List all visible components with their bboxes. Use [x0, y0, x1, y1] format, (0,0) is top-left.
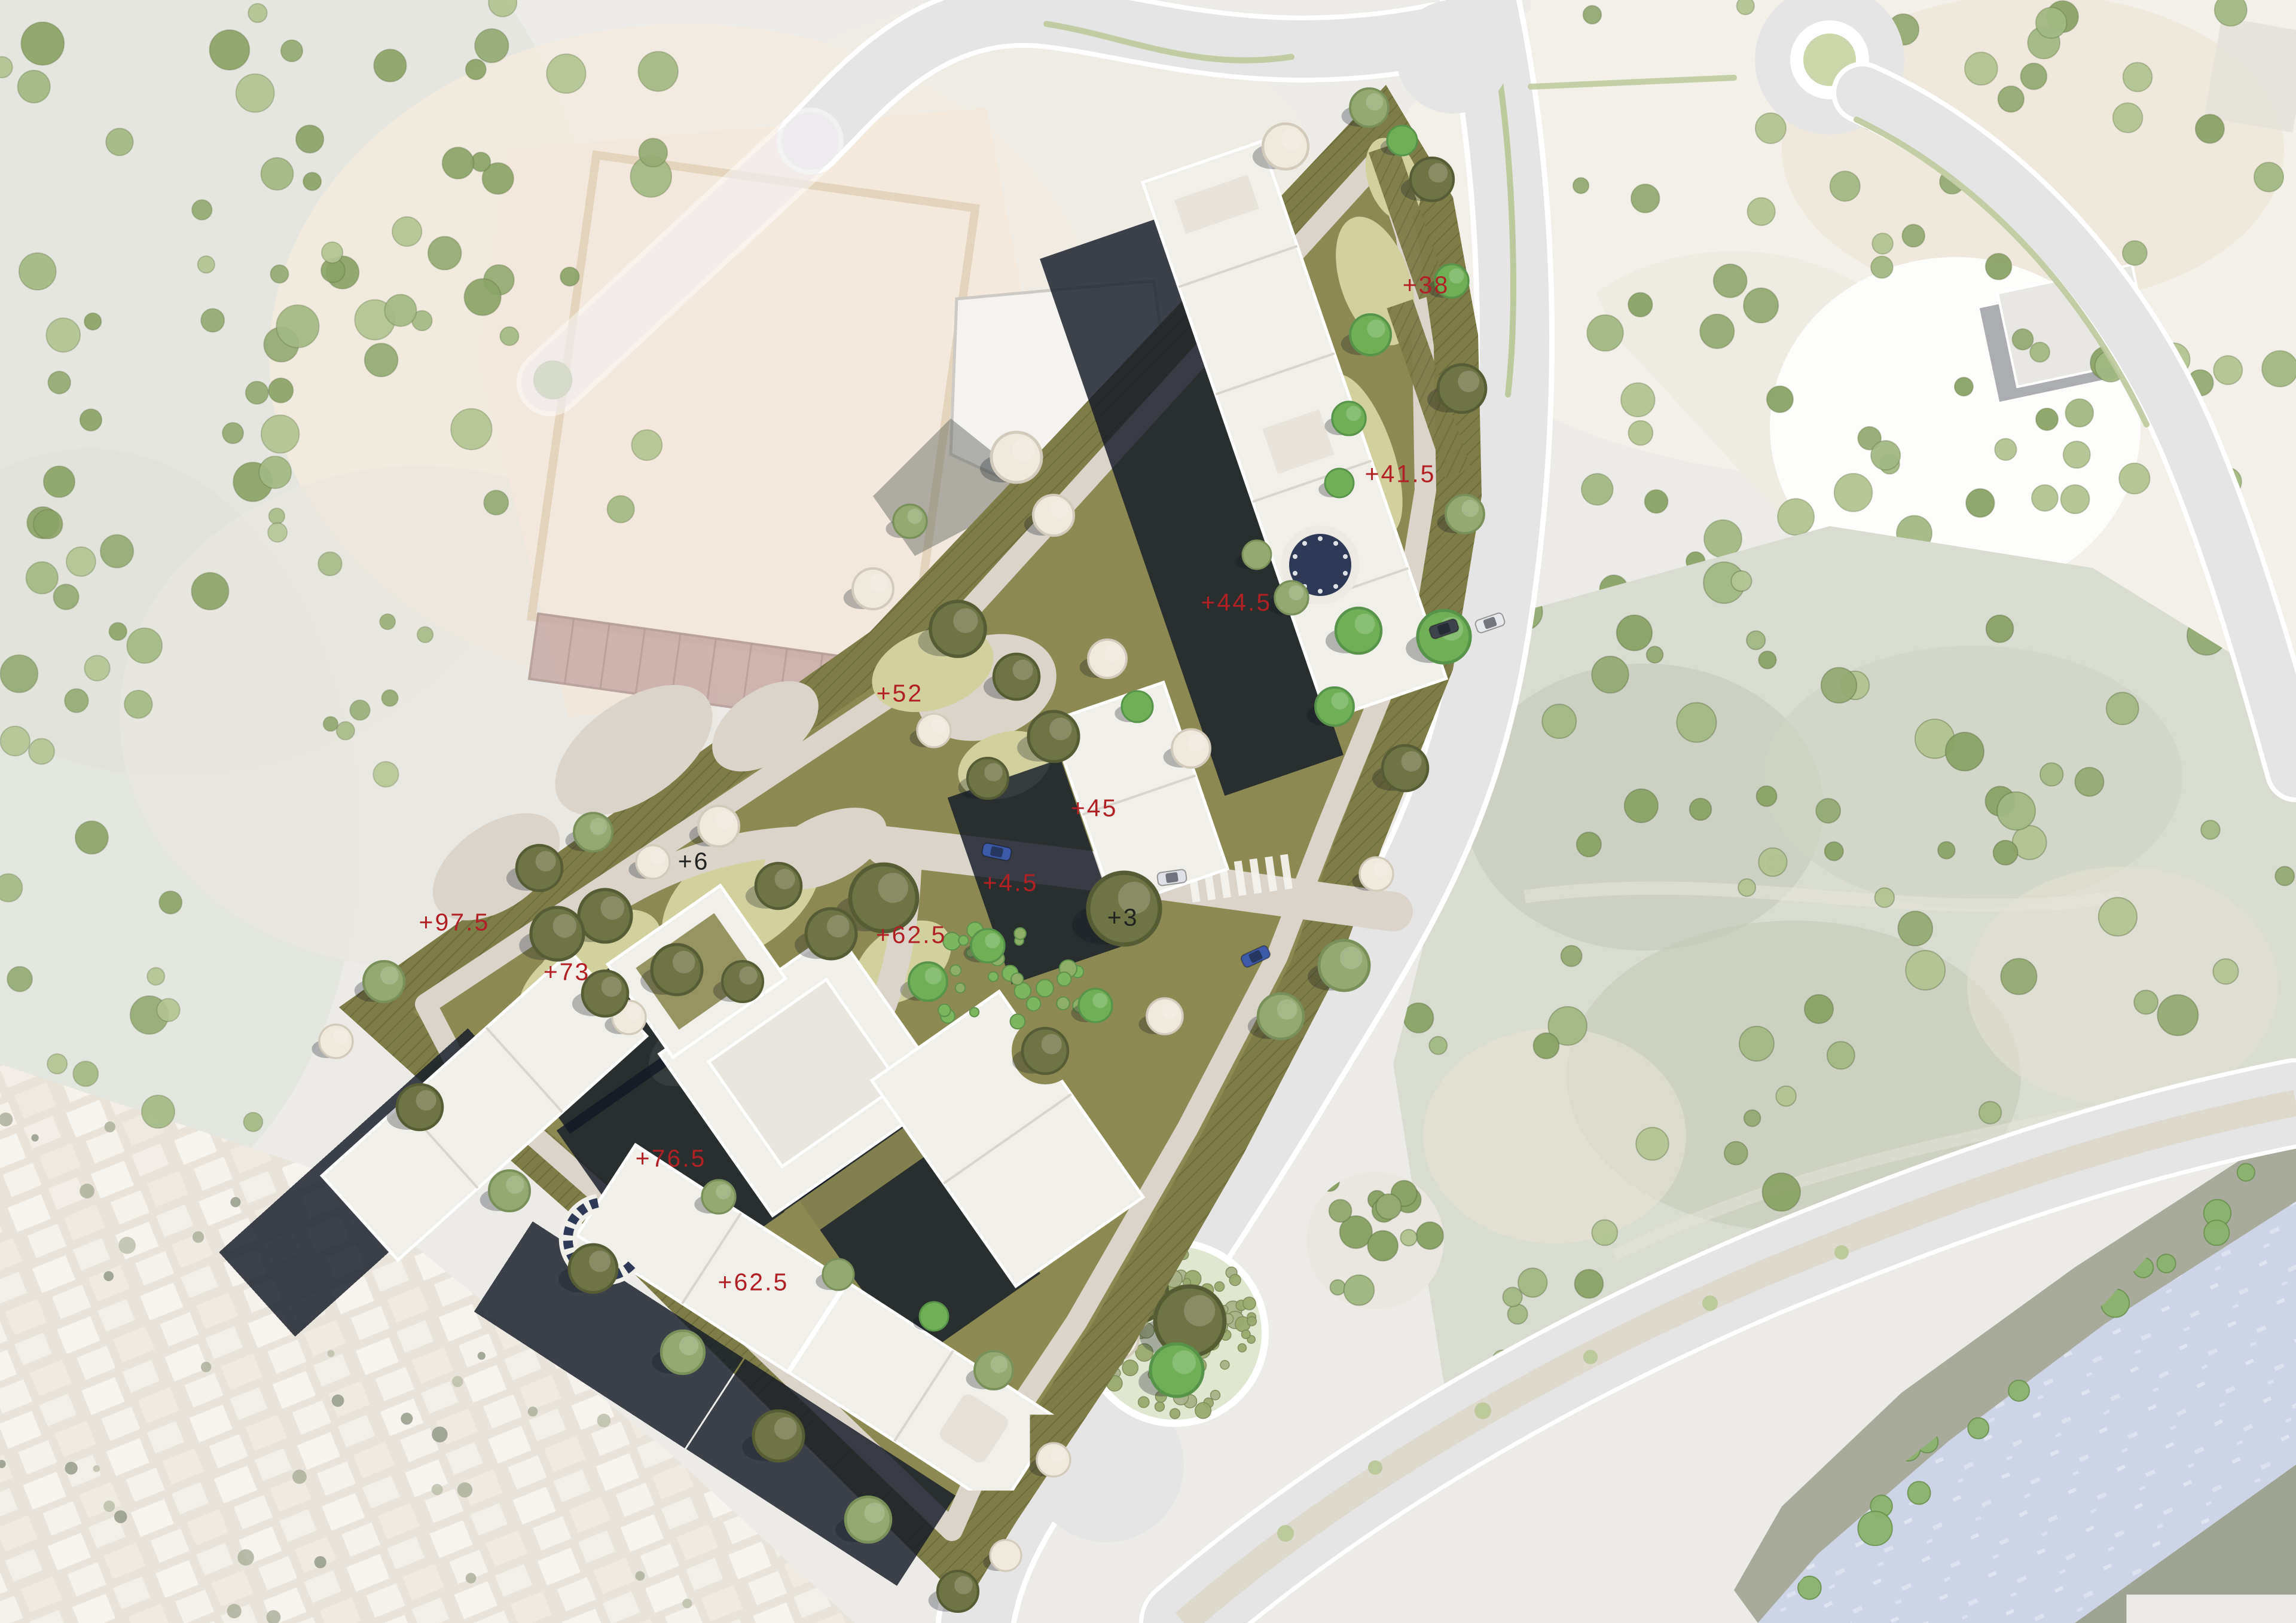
- site-plan-canvas: +38+41.5+44.5+52+45+4.5+3+6+62.5+97.5+73…: [0, 0, 2296, 1623]
- site-plan-map: [0, 0, 2296, 1623]
